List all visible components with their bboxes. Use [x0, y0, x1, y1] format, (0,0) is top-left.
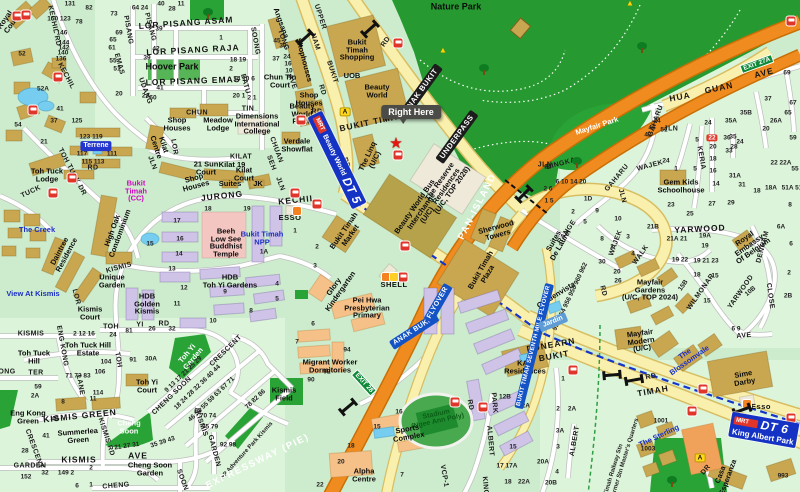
tooltip-text: Right Here — [388, 107, 434, 117]
map-canvas[interactable]: Nature ParkLOR PISANG ASAMLOR PISANG RAJ… — [0, 0, 800, 492]
right-here-tooltip[interactable]: Right Here — [381, 105, 441, 119]
mrt-logo-icon: MRT — [312, 115, 327, 134]
location-star-icon[interactable] — [389, 134, 402, 152]
map-base-layer — [0, 0, 800, 492]
tooltip-pointer-icon — [399, 118, 407, 124]
mrt-logo-icon: MRT — [733, 416, 758, 428]
